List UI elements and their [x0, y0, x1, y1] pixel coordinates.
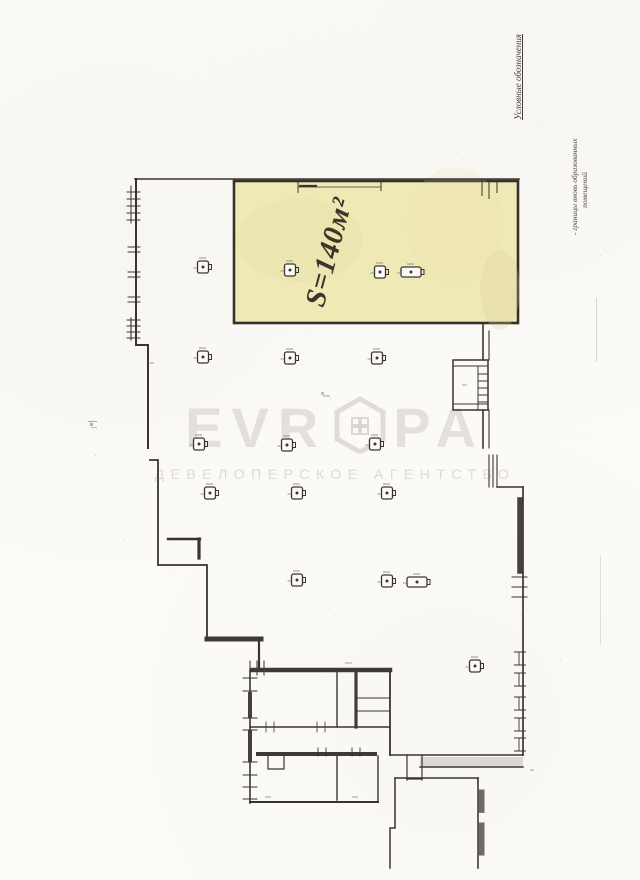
- column-symbol: [288, 484, 306, 499]
- column-symbol: [368, 349, 386, 364]
- legend-title: Условные обозначения: [513, 32, 529, 122]
- column-symbol: [378, 572, 396, 587]
- stairwell: [453, 324, 489, 448]
- scan-artifact-line: [91, 427, 97, 428]
- right-wall-windows: [514, 652, 526, 751]
- column-symbol: [378, 484, 396, 499]
- column-symbol: [190, 435, 208, 450]
- scan-noise-specks: [0, 0, 1, 1]
- legend-note-line2: помещений: [580, 172, 589, 208]
- middle-hall-walls: [150, 455, 527, 755]
- bottom-left-rooms: [243, 670, 390, 803]
- legend-note: - границы вновь образованных помещений: [570, 145, 590, 235]
- column-symbol: [403, 574, 430, 587]
- column-symbol: [366, 435, 384, 450]
- scan-artifact-line: [600, 556, 601, 644]
- column-symbol: [288, 571, 306, 586]
- column-symbol: [194, 258, 212, 273]
- bottom-right-rooms: [390, 755, 523, 868]
- legend-note-line1: - границы вновь образованных: [570, 138, 579, 235]
- column-symbol: [466, 657, 484, 672]
- scan-artifact-line: [596, 298, 597, 362]
- scanned-floor-plan-page: EVR PA ДЕВЕЛОПЕРСКОЕ АГЕНТСТВО: [0, 0, 640, 880]
- highlighted-room: [234, 167, 520, 330]
- column-symbol: [194, 348, 212, 363]
- column-symbol: [281, 349, 299, 364]
- column-symbol: [201, 484, 219, 499]
- scan-artifact-line: [88, 421, 97, 422]
- floor-plan-drawing: [0, 0, 640, 880]
- column-symbol: [278, 436, 296, 451]
